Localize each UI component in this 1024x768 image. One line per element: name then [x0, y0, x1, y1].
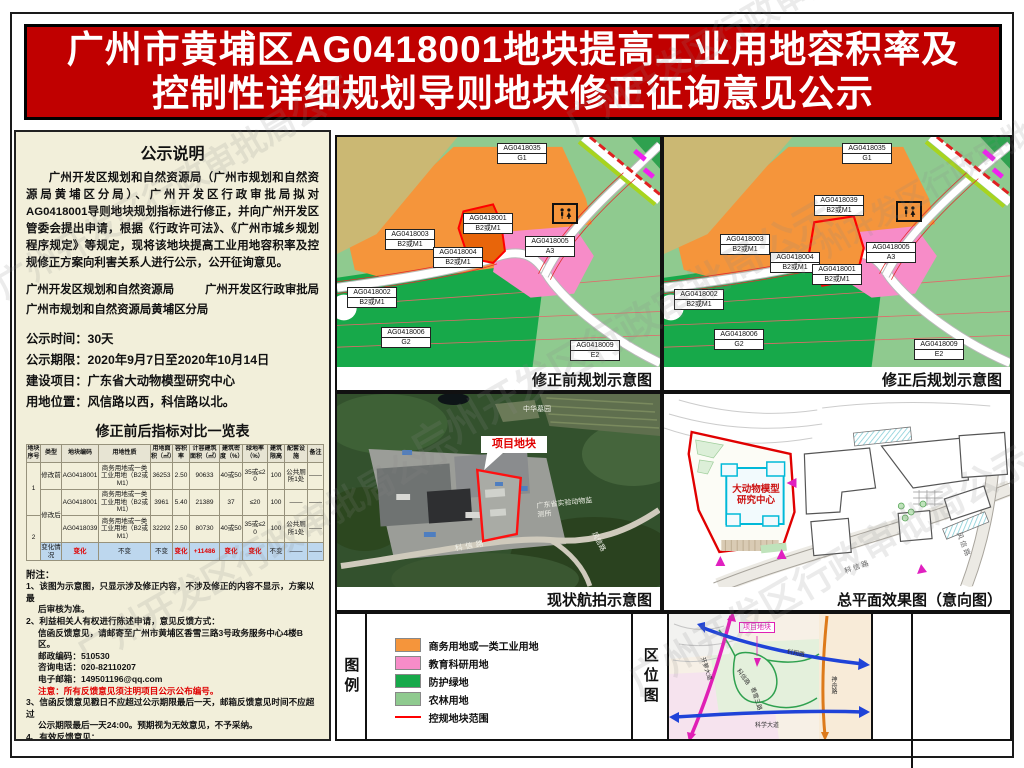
note-line: 信函反馈意见，请邮寄至广州市黄埔区香雪三路3号政务服务中心4楼B区。: [26, 628, 319, 651]
col-header: 类型: [41, 445, 62, 463]
note-line: 后审核为准。: [26, 604, 319, 616]
code-label-cell: 编码: [873, 614, 913, 768]
notice-title-line2: 控制性详细规划导则地块修正征询意见公示: [152, 72, 874, 116]
project-site-callout: 项目地块: [481, 436, 547, 453]
col-header: 容积率: [173, 445, 190, 463]
col-header: 建筑限高: [268, 445, 285, 463]
legend-item: 教育科研用地: [395, 654, 632, 672]
note-line: 咨询电话：020-82110207: [26, 662, 319, 674]
plot-label: AG0418003B2或M1: [385, 229, 435, 250]
road-label: 科学大道: [755, 720, 779, 729]
table-header-row: 地块序号 类型 地块编码 用地性质 用地面积（㎡） 容积率 计容建筑面积（㎡） …: [27, 445, 324, 463]
notice-banner: 广州市黄埔区AG0418001地块提高工业用地容积率及 控制性详细规划导则地块修…: [24, 24, 1002, 120]
col-header: 计容建筑面积（㎡）: [190, 445, 220, 463]
note-line-warning: 注意：所有反馈意见须注明项目公示公布编号。: [26, 686, 319, 698]
road-label: 神舟路: [829, 676, 838, 694]
map-after-caption: 修正后规划示意图: [664, 367, 1010, 390]
note-line: 邮政编码：510530: [26, 651, 319, 663]
note-line: 公示期限最后一天24:00。预期视为无效意见，不予采纳。: [26, 720, 319, 732]
col-header: 地块编码: [62, 445, 99, 463]
aerial-photo-panel: 项目地块 中华墓园 广东省实验动物监测所 科信路 风信路 现状航拍示意图: [335, 392, 662, 612]
code-row: 编码 AG0418001: [873, 614, 1010, 768]
plot-label: AG0418005A3: [525, 236, 575, 257]
plot-label: AG0418009E2: [570, 340, 620, 361]
code-label: 编码: [873, 614, 911, 768]
agency-right: 广州开发区行政审批局: [205, 281, 319, 297]
table-change-row: 变化情况 变化 不变 不变 变化 +11486 变化 变化 不变 —— ——: [27, 542, 324, 560]
comparison-table: 地块序号 类型 地块编码 用地性质 用地面积（㎡） 容积率 计容建筑面积（㎡） …: [26, 444, 324, 561]
aerial-photo-drawing: [337, 394, 660, 587]
restroom-icon: [896, 201, 922, 222]
notes-title: 附注：: [26, 567, 319, 581]
agency-branch: 广州市规划和自然资源局黄埔区分局: [26, 301, 319, 317]
col-header: 用地性质: [99, 445, 151, 463]
notice-title-line1: 广州市黄埔区AG0418001地块提高工业用地容积率及: [67, 28, 960, 72]
legend-title-cell: 图例: [337, 614, 365, 739]
research-center-label: 大动物模型 研究中心: [728, 484, 784, 506]
legend-item: 控规地块范围: [395, 708, 632, 726]
field-label: 建设项目：: [26, 374, 88, 388]
plot-label: AG0418039B2或M1: [814, 195, 864, 216]
col-header: 用地面积（㎡）: [151, 445, 173, 463]
plot-label-highlight: AG0418001B2或M1: [463, 213, 513, 234]
map-after-panel: AG0418035G1 AG0418039B2或M1 AG0418003B2或M…: [662, 135, 1012, 392]
table-row: 修改后 AG0418001 商务用地或一类工业用地（B2或M1） 3961 5.…: [27, 490, 324, 516]
field-label: 用地位置：: [26, 395, 88, 409]
plot-label: AG0418035G1: [497, 143, 547, 164]
restroom-icon: [552, 203, 578, 224]
notes-section: 附注： 1、该图为示意图，只显示涉及修正内容，不涉及修正的内容不显示，方案以最 …: [26, 567, 319, 741]
plot-label: AG0418035G1: [842, 143, 892, 164]
legend-line-plot-boundary: [395, 716, 421, 718]
plot-label: AG0418005A3: [866, 242, 916, 263]
col-header: 备注: [308, 445, 324, 463]
col-header: 地块序号: [27, 445, 41, 463]
legend-swatch-protective-green: [395, 674, 421, 688]
notice-paragraph: 广州开发区规划和自然资源局（广州市规划和自然资源局黄埔区分局）、广州开发区行政审…: [26, 170, 319, 272]
plot-code-value: AG0418001: [913, 614, 1010, 768]
field-value: 风信路以西，科信路以北。: [88, 395, 236, 409]
table-row: 1 修改前 AG0418001 商务用地或一类工业用地（B2或M1） 36253…: [27, 463, 324, 490]
plot-label: AG0418002B2或M1: [347, 287, 397, 308]
col-header: 配套设施: [285, 445, 308, 463]
field-value: 2020年9月7日至2020年10月14日: [88, 353, 270, 367]
master-plan-panel: 大动物模型 研究中心 科信路 风信路 总平面效果图（意向图）: [662, 392, 1012, 612]
col-header: 绿地率（%）: [243, 445, 268, 463]
cemetery-label: 中华墓园: [523, 406, 551, 415]
aerial-caption: 现状航拍示意图: [337, 587, 660, 610]
plot-label: AG0418006G2: [714, 329, 764, 350]
field-label: 公示期限：: [26, 353, 88, 367]
legend-item: 防护绿地: [395, 672, 632, 690]
map-before-panel: AG0418035G1 AG0418003B2或M1 AG0418004B2或M…: [335, 135, 662, 392]
note-line: 2、利益相关人有权进行陈述申请，意见反馈方式：: [26, 616, 319, 628]
notice-description-box: 公示说明 广州开发区规划和自然资源局（广州市规划和自然资源局黄埔区分局）、广州开…: [14, 130, 331, 741]
note-line: 3、信函反馈意见戳日不应超过公示期限最后一天，邮箱反馈意见时间不应超过: [26, 697, 319, 720]
location-map-title-cell: 区位图: [631, 614, 667, 739]
location-map: 项目地块 开萝大道 科翔路 科信路 香雪三路 神舟路 科学大道: [667, 614, 871, 739]
notice-fields: 公示时间：30天 公示期限：2020年9月7日至2020年10月14日 建设项目…: [26, 329, 319, 413]
bottom-info-row: 图例 商务用地或一类工业用地 教育科研用地 防护绿地 农林用地 控规地块范围: [335, 612, 1012, 741]
location-map-title: 区位图: [633, 614, 667, 739]
field-value: 广东省大动物模型研究中心: [88, 374, 236, 388]
master-plan-caption: 总平面效果图（意向图）: [664, 587, 1010, 610]
location-site-label: 项目地块: [739, 622, 775, 633]
agency-left: 广州开发区规划和自然资源局: [26, 281, 174, 297]
legend-box: 商务用地或一类工业用地 教育科研用地 防护绿地 农林用地 控规地块范围: [365, 614, 632, 739]
table-row: 2 AG0418039 商务用地或一类工业用地（B2或M1） 32292 2.5…: [27, 515, 324, 542]
code-north-box: 编码 AG0418001 指北针 N: [871, 614, 1010, 739]
note-line: 4、有效反馈意见：: [26, 732, 319, 741]
legend-swatch-education-research: [395, 656, 421, 670]
field-label: 公示时间：: [26, 332, 88, 346]
legend-item: 农林用地: [395, 690, 632, 708]
legend-swatch-commercial-industrial: [395, 638, 421, 652]
master-plan-drawing: [664, 394, 1010, 587]
map-before-caption: 修正前规划示意图: [337, 367, 660, 390]
public-notice-sheet: 广州市黄埔区AG0418001地块提高工业用地容积率及 控制性详细规划导则地块修…: [0, 0, 1024, 768]
legend-swatch-agriculture-forest: [395, 692, 421, 706]
plot-label: AG0418002B2或M1: [674, 289, 724, 310]
comparison-table-title: 修正前后指标对比一览表: [26, 421, 319, 441]
note-line: 1、该图为示意图，只显示涉及修正内容，不涉及修正的内容不显示，方案以最: [26, 581, 319, 604]
plot-label: AG0418009E2: [914, 339, 964, 360]
field-value: 30天: [88, 332, 114, 346]
plot-label: AG0418006G2: [381, 327, 431, 348]
legend-item: 商务用地或一类工业用地: [395, 636, 632, 654]
col-header: 建筑密度（%）: [220, 445, 243, 463]
legend-title: 图例: [337, 614, 365, 739]
plot-label: AG0418003B2或M1: [720, 234, 770, 255]
plot-label: AG0418004B2或M1: [433, 247, 483, 268]
plot-label-highlight: AG0418001B2或M1: [812, 264, 862, 285]
notice-section-title: 公示说明: [26, 140, 319, 164]
note-line: 电子邮箱：149501196@qq.com: [26, 674, 319, 686]
